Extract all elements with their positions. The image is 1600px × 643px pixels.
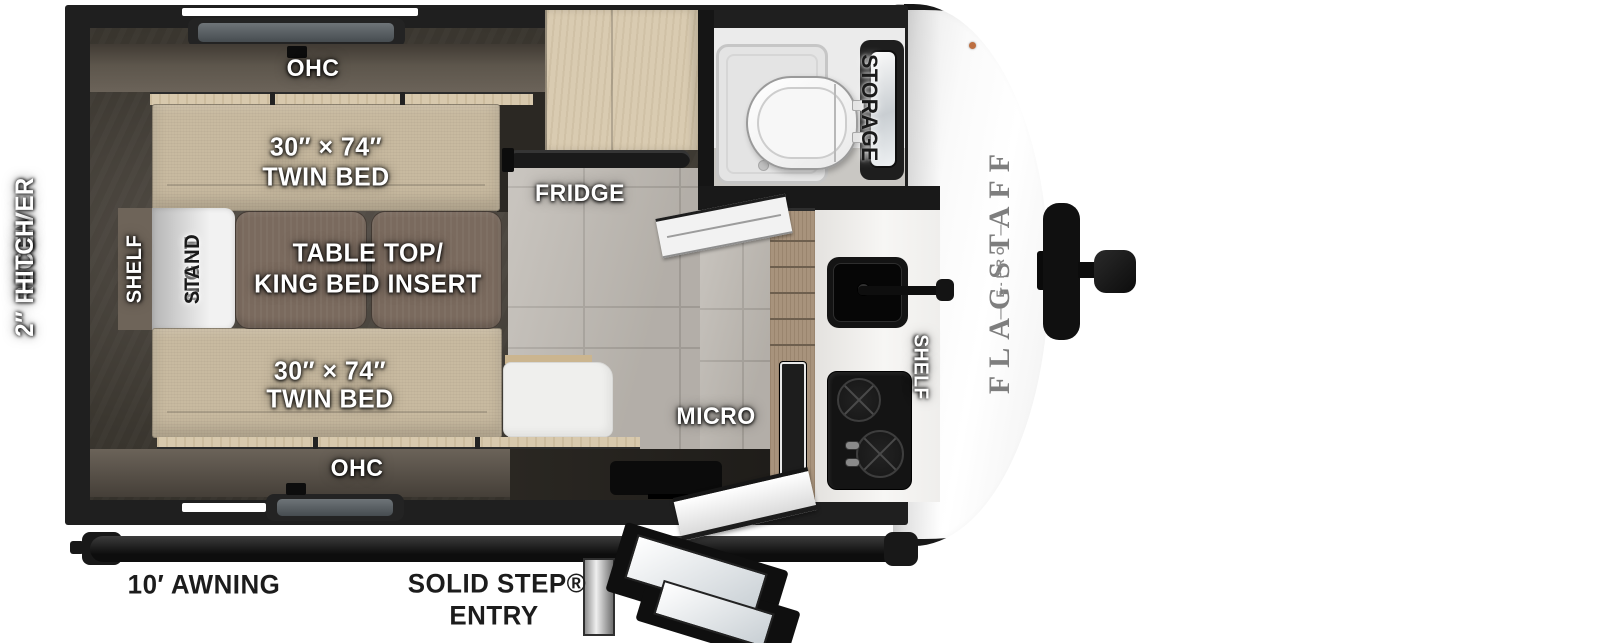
awning-label: 10′ AWNING (128, 570, 281, 601)
vent-latch (502, 148, 514, 172)
floorplan-canvas: FLAGSTAFF — E-PRO — (0, 0, 1600, 643)
cooktop-knob (845, 458, 860, 467)
sidewall-trim (182, 8, 418, 16)
hitch-coupler-icon (1094, 250, 1136, 293)
twin-bed-top-label: TWIN BED (262, 162, 389, 193)
drawer-line (770, 292, 815, 294)
propane-tank-cover (1043, 203, 1080, 340)
clearance-light-icon (969, 42, 976, 49)
burner-icon (856, 430, 904, 478)
shelf-gap (400, 92, 405, 105)
twin-bed-bottom-label: TWIN BED (266, 384, 393, 415)
shelf-gap (270, 92, 275, 105)
cooktop-knob (845, 441, 860, 450)
shelf-gap (313, 437, 318, 449)
drawer-line (770, 318, 815, 320)
fridge-vent (508, 150, 690, 168)
solid-step-label-line2: ENTRY (449, 601, 538, 632)
faucet-handle (936, 279, 954, 301)
window-pane (198, 23, 394, 42)
fridge-label: FRIDGE (535, 180, 625, 208)
storage-label: STORAGE (856, 54, 882, 161)
toilet-lid-line (834, 84, 836, 162)
bath-wall (698, 10, 714, 210)
drawer-line (770, 344, 815, 346)
brand-model: — E-PRO — (995, 221, 1007, 320)
awning-end-cap (884, 532, 918, 566)
sidewall-trim (182, 503, 266, 512)
table-top-label-line2: KING BED INSERT (254, 269, 482, 300)
twin-bed-top-size-label: 30″ × 74″ (270, 132, 382, 163)
window-latch (286, 483, 306, 495)
bedroom-shelf-label: SHELF (123, 235, 147, 303)
micro-label: MICRO (676, 403, 755, 431)
ohc-top-label: OHC (287, 55, 340, 83)
kitchen-shelf-label: SHELF (909, 334, 932, 399)
cabinet-shelf-edge-bottom (157, 437, 640, 449)
shelf-gap (475, 437, 480, 449)
step-bracket (583, 558, 615, 636)
table-top-label-line1: TABLE TOP/ (293, 238, 444, 269)
awning-roller (90, 536, 908, 562)
twin-bed-bottom-size-label: 30″ × 74″ (274, 356, 386, 387)
toilet-icon (746, 76, 858, 170)
drawer-line (770, 240, 815, 242)
window-pane (277, 499, 393, 516)
drawer-line (770, 266, 815, 268)
solid-step-label-line1: SOLID STEP® (408, 569, 586, 600)
ohc-bottom-label: OHC (331, 455, 384, 483)
fridge-cabinet (545, 10, 698, 150)
microwave-icon (780, 362, 806, 478)
seat-cube (503, 362, 613, 437)
clearance-light-icon (984, 508, 991, 515)
faucet-icon (858, 286, 944, 295)
burner-icon (837, 378, 881, 422)
brand-logo: FLAGSTAFF — E-PRO — (972, 125, 1028, 415)
cooktop-icon (827, 371, 912, 490)
